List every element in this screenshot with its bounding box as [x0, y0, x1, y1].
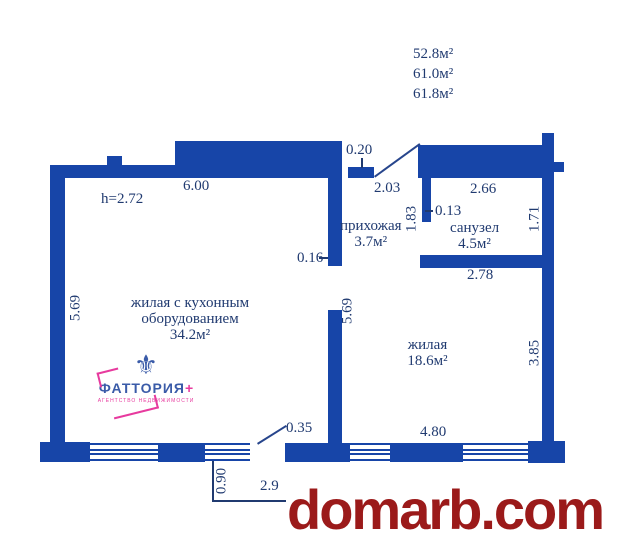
window	[350, 443, 390, 461]
agency-logo: ⚜ ФАТТОРИЯ+ АГЕНТСТВО НЕДВИЖИМОСТИ	[86, 350, 206, 425]
floor-plan-canvas: 52.8м² 61.0м² 61.8м² 6.00 h=2.72 0.20 2.…	[0, 0, 630, 556]
room-area: 4.5м²	[450, 236, 499, 252]
room-name: санузел	[450, 220, 499, 236]
logo-plus: +	[185, 380, 193, 396]
dim-balcony-depth: 0.90	[215, 468, 230, 494]
dim-balcony-door: 0.35	[286, 421, 312, 436]
window	[90, 443, 158, 461]
dim-left-height: 5.69	[69, 295, 84, 321]
wall-bottom-corner	[528, 441, 565, 463]
total-areas-list: 52.8м² 61.0м² 61.8м²	[413, 44, 453, 104]
wall-bathroom-left	[422, 178, 431, 222]
room-label-bathroom: санузел 4.5м²	[450, 220, 499, 252]
area-line: 61.0м²	[413, 64, 453, 84]
wall-middle-upper	[328, 165, 342, 266]
dim-mid-height: 5.69	[341, 298, 356, 324]
wall-left-exterior	[50, 165, 65, 444]
wall-entry-stub	[348, 167, 374, 178]
dim-bottom-width: 4.80	[420, 425, 446, 440]
wall-bottom-segment	[40, 442, 90, 462]
wall-top-thin	[50, 165, 342, 178]
wall-bottom-segment	[390, 443, 463, 462]
balcony-dim-line-horizontal	[212, 500, 286, 502]
area-line: 61.8м²	[413, 84, 453, 104]
room-name: жилая с кухонным	[105, 295, 275, 311]
wall-middle-lower	[328, 310, 342, 444]
wall-top-nub	[107, 156, 122, 166]
dim-dash	[425, 210, 433, 212]
wall-right-nub	[554, 162, 564, 172]
area-line: 52.8м²	[413, 44, 453, 64]
wall-bottom-segment	[158, 443, 205, 462]
room-name: прихожая	[340, 218, 402, 234]
wall-bathroom-top	[418, 145, 547, 178]
dim-bath-width: 2.66	[470, 182, 496, 197]
dim-right-height: 3.85	[528, 340, 543, 366]
dim-hall-depth: 1.83	[405, 206, 420, 232]
room-label-hallway: прихожая 3.7м²	[340, 218, 402, 250]
entry-door-swing-line	[374, 143, 420, 178]
room-label-living-kitchen: жилая с кухонным оборудованием 34.2м²	[105, 295, 275, 343]
dim-bath-bottom: 2.78	[467, 268, 493, 283]
room-area: 3.7м²	[340, 234, 402, 250]
dim-ceiling-height: h=2.72	[101, 192, 143, 207]
dim-bath-depth: 1.71	[528, 206, 543, 232]
window	[463, 443, 528, 461]
wall-top-thick	[175, 141, 342, 166]
dim-tick	[361, 158, 363, 168]
dim-bath-wall: 0.13	[435, 204, 461, 219]
wall-bottom-segment	[285, 443, 350, 462]
room-area: 34.2м²	[105, 327, 275, 343]
site-watermark: domarb.com	[287, 482, 603, 538]
room-name: жилая	[385, 337, 470, 353]
room-name: оборудованием	[105, 311, 275, 327]
dim-balcony-width: 2.9	[260, 479, 279, 494]
room-area: 18.6м²	[385, 353, 470, 369]
wall-right-exterior	[542, 133, 554, 443]
dim-entry-gap: 0.20	[346, 143, 372, 158]
balcony-door-swing-line	[257, 425, 287, 445]
room-label-living: жилая 18.6м²	[385, 337, 470, 369]
window	[205, 443, 250, 461]
dim-top-width: 6.00	[183, 179, 209, 194]
dim-mid-wall: 0.16	[297, 251, 323, 266]
dim-hall-width: 2.03	[374, 181, 400, 196]
